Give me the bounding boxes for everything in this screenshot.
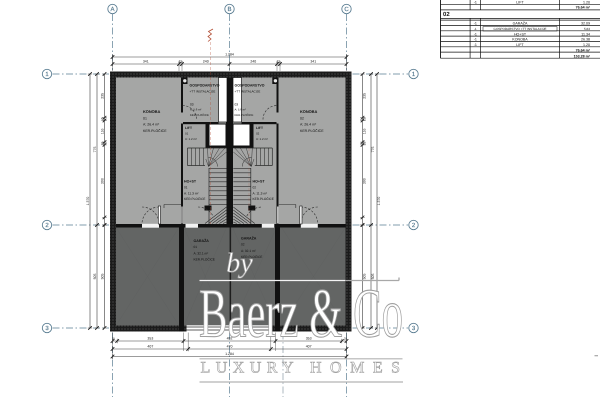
svg-text:A: 1.2 m²: A: 1.2 m² [185,137,197,141]
svg-text:A: 1.2 m²: A: 1.2 m² [256,137,268,141]
svg-text:235: 235 [363,93,367,99]
svg-text:505: 505 [93,274,97,280]
svg-text:116: 116 [363,128,367,134]
svg-text:GARAŽA: GARAŽA [241,236,257,241]
svg-text:76.64 m²: 76.64 m² [576,6,591,10]
svg-text:235: 235 [100,93,104,99]
svg-text:HO+ST: HO+ST [514,32,527,36]
svg-text:390: 390 [363,178,367,184]
svg-text:GARAŽA: GARAŽA [194,238,210,243]
svg-text:A: 5.6 m²: A: 5.6 m² [235,108,246,112]
svg-text:341: 341 [143,60,149,64]
svg-text:01: 01 [143,116,147,120]
svg-text:GOSPODARSTVO +TT INSTALACIJE: GOSPODARSTVO +TT INSTALACIJE [494,27,547,31]
svg-text:A: 26.4 m²: A: 26.4 m² [143,123,160,127]
svg-text:11.34: 11.34 [581,32,590,36]
svg-text:03: 03 [190,103,194,107]
svg-text:by: by [226,248,253,279]
svg-text:02: 02 [443,11,450,18]
svg-text:LIFT: LIFT [516,43,524,47]
svg-text:+TT INSTALACIJE: +TT INSTALACIJE [190,90,216,94]
svg-text:KER.PLOČICE: KER.PLOČICE [235,113,254,117]
svg-text:02: 02 [253,185,257,189]
svg-text:GOSPODARSTVO: GOSPODARSTVO [235,84,265,88]
svg-text:240: 240 [203,60,209,64]
svg-text:15: 15 [363,142,367,146]
svg-text:LIFT: LIFT [256,126,263,130]
svg-text:03: 03 [235,103,239,107]
svg-text:LIFT: LIFT [185,126,192,130]
svg-text:240: 240 [250,60,256,64]
svg-text:775: 775 [371,147,375,153]
svg-text:505: 505 [100,274,104,280]
svg-text:Baerz & Co: Baerz & Co [199,276,403,353]
svg-text:GOSPODARSTVO: GOSPODARSTVO [190,84,220,88]
svg-text:1.20: 1.20 [583,43,590,47]
svg-text:1.284: 1.284 [225,53,234,57]
svg-text:KER.PLOČICE: KER.PLOČICE [190,113,209,117]
svg-text:1.284: 1.284 [225,352,234,356]
svg-text:-1: -1 [474,27,477,31]
svg-text:32.09: 32.09 [581,22,590,26]
svg-text:01: 01 [194,245,198,249]
svg-text:KONOBA: KONOBA [143,109,160,114]
svg-text:KER.PLOČICE: KER.PLOČICE [300,128,324,133]
svg-text:02: 02 [241,243,245,247]
svg-text:GARAŽA: GARAŽA [513,21,528,26]
svg-text:-1: -1 [474,32,477,36]
svg-text:01: 01 [184,185,188,189]
svg-text:390: 390 [100,178,104,184]
svg-text:-1: -1 [474,22,477,26]
svg-text:A: 11.3 m²: A: 11.3 m² [253,191,267,195]
svg-text:407: 407 [147,345,153,349]
svg-text:353: 353 [147,337,153,341]
svg-text:+TT INSTALACIJE: +TT INSTALACIJE [235,90,261,94]
svg-text:153.28 m²: 153.28 m² [574,54,591,58]
svg-text:KONOBA: KONOBA [512,38,528,42]
svg-text:15: 15 [100,117,104,121]
svg-text:02: 02 [256,132,260,136]
svg-text:A: 32.1 m²: A: 32.1 m² [194,251,209,255]
svg-text:76.64 m²: 76.64 m² [576,48,591,52]
svg-text:KER.PLOČICE: KER.PLOČICE [194,258,215,262]
svg-text:1.370: 1.370 [86,197,90,206]
svg-text:26.38: 26.38 [581,38,590,42]
svg-text:341: 341 [310,60,316,64]
svg-text:116: 116 [100,128,104,134]
svg-text:KER.PLOČICE: KER.PLOČICE [253,197,274,201]
svg-text:1.20: 1.20 [583,0,590,4]
svg-text:A: 11.3 m²: A: 11.3 m² [184,191,198,195]
svg-text:-1: -1 [474,38,477,42]
svg-text:KONOBA: KONOBA [300,109,317,114]
svg-text:A: 26.4 m²: A: 26.4 m² [300,123,317,127]
svg-text:HO+ST: HO+ST [184,180,197,184]
svg-text:15: 15 [363,117,367,121]
svg-text:KER.PLOČICE: KER.PLOČICE [143,128,167,133]
svg-text:01: 01 [185,132,189,136]
svg-text:15: 15 [100,142,104,146]
svg-text:02: 02 [300,116,304,120]
svg-text:KER.PLOČICE: KER.PLOČICE [184,197,205,201]
svg-text:LIFT: LIFT [516,0,524,4]
svg-text:B: B [227,6,231,13]
svg-text:A: A [110,6,114,13]
svg-text:HO+ST: HO+ST [253,180,266,184]
svg-text:C: C [344,6,349,13]
svg-text:A: 5.6 m²: A: 5.6 m² [190,108,201,112]
svg-text:1.370: 1.370 [377,197,381,206]
svg-text:5.63: 5.63 [584,27,590,31]
svg-text:-1: -1 [474,0,477,4]
svg-text:775: 775 [93,147,97,153]
svg-text:-1: -1 [474,43,477,47]
